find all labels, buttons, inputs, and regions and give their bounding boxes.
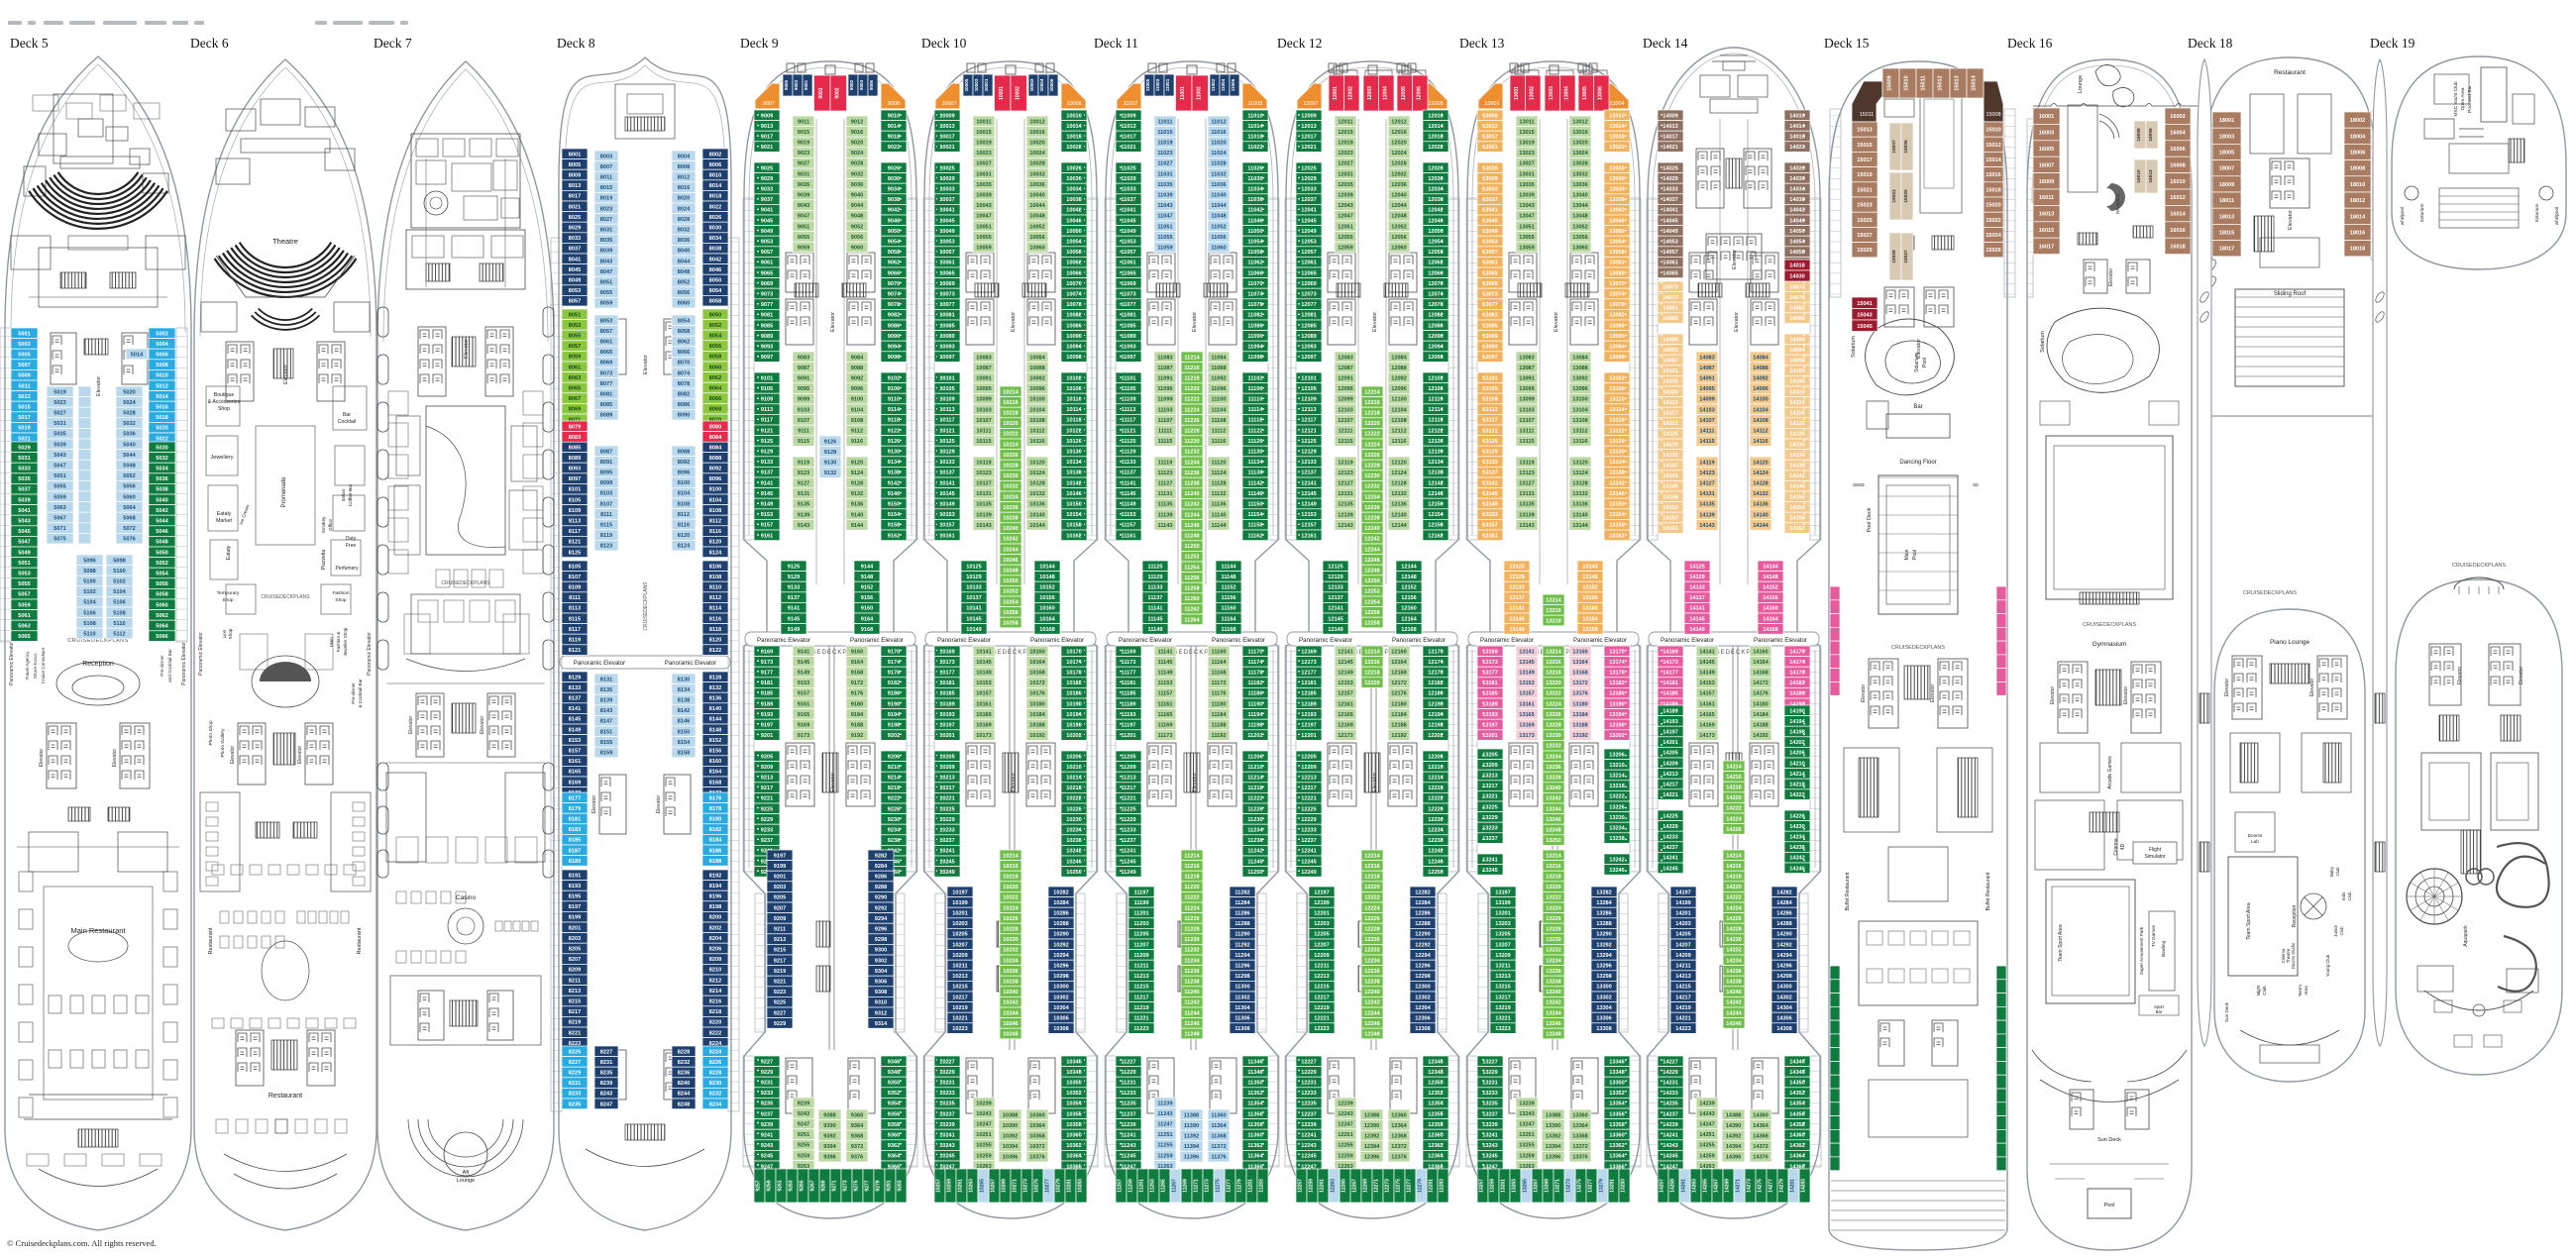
svg-text:12135: 12135 (1338, 502, 1353, 508)
svg-text:9043: 9043 (798, 203, 809, 209)
svg-text:CRUISEDECKPLANS: CRUISEDECKPLANS (441, 580, 490, 586)
svg-text:5027: 5027 (54, 411, 65, 417)
svg-text:5021: 5021 (18, 436, 30, 442)
svg-text:13056: 13056 (1572, 235, 1588, 241)
svg-text:12221: 12221 (1314, 1016, 1330, 1022)
svg-text:8085: 8085 (600, 402, 612, 408)
svg-text:11028: 11028 (1211, 161, 1226, 167)
svg-text:13160: 13160 (1572, 649, 1588, 655)
svg-text:Panoramic Elevator: Panoramic Elevator (367, 632, 373, 676)
svg-text:11040: 11040 (1211, 193, 1226, 199)
svg-text:11119: 11119 (1158, 460, 1173, 466)
svg-text:13199: 13199 (1495, 900, 1511, 906)
svg-text:10226: 10226 (1003, 453, 1019, 459)
svg-text:Elevator: Elevator (230, 745, 236, 764)
svg-text:8230: 8230 (709, 1081, 721, 1087)
svg-text:8158: 8158 (678, 751, 690, 757)
svg-text:10172: 10172 (1029, 681, 1045, 686)
svg-text:14144: 14144 (1763, 564, 1778, 570)
svg-text:5035: 5035 (18, 476, 30, 482)
svg-text:9157: 9157 (761, 523, 773, 529)
svg-text:Market: Market (216, 518, 232, 524)
svg-text:Elevator: Elevator (1011, 773, 1017, 792)
svg-text:9139: 9139 (798, 512, 809, 518)
svg-text:13015: 13015 (1519, 130, 1535, 136)
svg-text:9172: 9172 (851, 681, 863, 686)
svg-text:12120: 12120 (1391, 460, 1407, 466)
svg-text:11248: 11248 (1184, 1032, 1199, 1038)
svg-text:11141: 11141 (1158, 649, 1173, 655)
svg-text:13292: 13292 (1596, 942, 1612, 948)
svg-text:8034: 8034 (709, 236, 722, 242)
svg-text:9169: 9169 (761, 649, 773, 655)
svg-text:8240: 8240 (678, 1081, 690, 1087)
svg-text:Elevator: Elevator (643, 355, 649, 374)
svg-text:8053: 8053 (569, 323, 581, 329)
svg-text:13248: 13248 (1546, 1032, 1561, 1038)
svg-text:8138: 8138 (678, 698, 690, 704)
svg-text:11306: 11306 (1234, 1016, 1249, 1022)
svg-text:9314: 9314 (875, 1021, 888, 1027)
svg-text:12388: 12388 (1364, 1112, 1380, 1118)
svg-text:Pre-dinner: Pre-dinner (351, 682, 356, 704)
svg-text:12250: 12250 (1364, 578, 1380, 584)
svg-text:8069: 8069 (569, 407, 581, 413)
svg-text:8116: 8116 (709, 529, 721, 535)
svg-text:10131: 10131 (976, 491, 992, 497)
svg-text:9223: 9223 (774, 990, 786, 995)
svg-text:5053: 5053 (18, 572, 30, 577)
svg-text:9225: 9225 (761, 806, 773, 812)
svg-text:12302: 12302 (1415, 995, 1431, 1000)
svg-text:Jeweller Shop: Jeweller Shop (343, 627, 348, 656)
svg-text:10032: 10032 (1029, 171, 1045, 177)
svg-text:8178: 8178 (709, 806, 721, 812)
svg-text:13184: 13184 (1572, 712, 1588, 718)
svg-text:10003: 10003 (974, 78, 979, 91)
svg-text:12247: 12247 (1338, 1122, 1353, 1128)
svg-text:8010: 8010 (709, 173, 721, 179)
svg-text:8145: 8145 (569, 717, 581, 723)
svg-text:13168: 13168 (1582, 627, 1598, 633)
svg-text:11164: 11164 (1212, 660, 1228, 666)
svg-text:8011: 8011 (600, 175, 612, 181)
svg-text:8015: 8015 (600, 185, 612, 191)
svg-text:8060: 8060 (678, 301, 690, 307)
svg-text:12180: 12180 (1391, 701, 1407, 707)
svg-text:11224: 11224 (1184, 407, 1200, 413)
svg-text:12007: 12007 (1304, 101, 1319, 107)
svg-text:11035: 11035 (1157, 182, 1172, 188)
svg-text:12184: 12184 (1391, 712, 1407, 718)
svg-text:8104: 8104 (709, 497, 722, 503)
svg-text:8141: 8141 (569, 706, 581, 712)
svg-text:8210: 8210 (709, 968, 721, 974)
svg-text:13120: 13120 (1572, 460, 1588, 466)
svg-text:8187: 8187 (569, 848, 581, 854)
svg-text:8234: 8234 (709, 1101, 722, 1107)
svg-text:13145: 13145 (1509, 616, 1525, 622)
svg-text:10236: 10236 (1003, 505, 1019, 511)
svg-text:11152: 11152 (1222, 585, 1236, 591)
svg-text:Restaurant: Restaurant (208, 927, 214, 954)
svg-text:13207: 13207 (1495, 942, 1511, 948)
svg-text:13096: 13096 (1572, 386, 1588, 392)
svg-text:12215: 12215 (1314, 985, 1330, 991)
svg-text:13234: 13234 (1546, 754, 1561, 760)
svg-text:11215: 11215 (1133, 985, 1148, 991)
svg-text:10251: 10251 (976, 1132, 992, 1138)
svg-text:10169: 10169 (976, 723, 992, 729)
svg-text:Shore Excur.: Shore Excur. (33, 653, 38, 679)
svg-text:5007: 5007 (18, 363, 30, 368)
svg-text:11220: 11220 (1184, 386, 1199, 392)
svg-text:12228: 12228 (1364, 927, 1380, 933)
svg-text:12294: 12294 (1415, 953, 1431, 959)
svg-text:12149: 12149 (1338, 671, 1353, 677)
svg-text:10019: 10019 (976, 141, 992, 147)
svg-text:10248: 10248 (1003, 569, 1019, 575)
svg-text:10100: 10100 (1029, 397, 1045, 403)
svg-text:5031: 5031 (18, 456, 30, 462)
svg-text:13236: 13236 (1546, 765, 1561, 771)
svg-text:5042: 5042 (156, 508, 167, 514)
svg-text:9047: 9047 (798, 214, 809, 220)
svg-text:10044: 10044 (1029, 203, 1045, 209)
svg-text:9141: 9141 (788, 606, 800, 612)
svg-text:8142: 8142 (678, 708, 690, 714)
svg-text:10284: 10284 (1053, 900, 1069, 906)
svg-text:13157: 13157 (1519, 691, 1535, 697)
svg-text:9005: 9005 (784, 79, 789, 90)
svg-text:11169: 11169 (1158, 723, 1173, 729)
svg-text:13176: 13176 (1572, 691, 1588, 697)
svg-text:11180: 11180 (1212, 701, 1227, 707)
svg-text:8054: 8054 (709, 334, 722, 340)
svg-text:12164: 12164 (1391, 660, 1407, 666)
svg-text:10218: 10218 (1003, 411, 1019, 417)
svg-text:9281: 9281 (887, 1180, 893, 1191)
svg-text:9227: 9227 (761, 1059, 773, 1065)
svg-text:10108: 10108 (1029, 418, 1045, 424)
svg-text:10115: 10115 (976, 439, 991, 445)
svg-text:10180: 10180 (1029, 701, 1045, 707)
svg-text:5014: 5014 (156, 394, 168, 400)
svg-text:11019: 11019 (1157, 141, 1172, 147)
svg-text:13019: 13019 (1519, 141, 1535, 147)
svg-text:9041: 9041 (761, 208, 773, 214)
svg-text:13115: 13115 (1519, 439, 1534, 445)
svg-text:10111: 10111 (977, 429, 992, 435)
svg-text:11220: 11220 (1184, 885, 1199, 890)
svg-text:Deck 14: Deck 14 (1643, 36, 1688, 51)
svg-text:13091: 13091 (1519, 376, 1535, 382)
svg-text:8079: 8079 (569, 424, 581, 430)
svg-text:5040: 5040 (156, 497, 167, 503)
svg-text:10232: 10232 (1003, 948, 1019, 954)
svg-text:8108: 8108 (709, 575, 721, 580)
svg-text:13161: 13161 (1519, 701, 1535, 707)
svg-text:Panoramic Elevator: Panoramic Elevator (1661, 637, 1714, 644)
svg-text:10216: 10216 (1003, 400, 1019, 406)
svg-text:10239: 10239 (976, 1100, 992, 1106)
svg-text:12160: 12160 (1401, 606, 1417, 612)
svg-text:11125: 11125 (1148, 564, 1163, 570)
svg-text:8182: 8182 (709, 827, 721, 833)
svg-text:8199: 8199 (569, 915, 581, 921)
svg-text:10116: 10116 (1029, 439, 1044, 445)
svg-text:8012: 8012 (678, 175, 690, 181)
svg-text:13039: 13039 (1519, 193, 1535, 199)
svg-text:10201: 10201 (952, 911, 968, 917)
svg-text:12016: 12016 (1391, 130, 1407, 136)
svg-text:11216: 11216 (1184, 366, 1199, 371)
svg-text:9173: 9173 (761, 660, 773, 666)
svg-text:9116: 9116 (851, 439, 863, 445)
svg-text:9078: 9078 (888, 302, 900, 308)
svg-text:11246: 11246 (1184, 1021, 1199, 1027)
svg-text:10164: 10164 (1029, 660, 1045, 666)
svg-text:12083: 12083 (1338, 355, 1353, 361)
svg-text:11219: 11219 (1133, 1005, 1148, 1011)
svg-text:5011: 5011 (18, 383, 30, 389)
svg-text:8061: 8061 (569, 365, 581, 370)
svg-text:8114: 8114 (709, 606, 722, 612)
svg-text:13234: 13234 (1546, 958, 1561, 964)
svg-text:9002: 9002 (849, 79, 854, 90)
svg-text:13133: 13133 (1509, 585, 1525, 591)
svg-text:5067: 5067 (54, 516, 65, 522)
svg-text:12230: 12230 (1364, 937, 1380, 943)
svg-text:9050: 9050 (888, 229, 900, 235)
svg-text:12219: 12219 (1314, 1005, 1330, 1011)
svg-text:Restaurant: Restaurant (268, 1093, 302, 1100)
svg-text:12015: 12015 (1338, 130, 1353, 136)
svg-text:11223: 11223 (1133, 1026, 1148, 1032)
svg-text:8068: 8068 (709, 407, 721, 413)
svg-text:10005: 10005 (964, 78, 969, 91)
svg-text:8183: 8183 (569, 827, 581, 833)
svg-text:5020: 5020 (123, 389, 135, 395)
svg-text:9190: 9190 (888, 701, 900, 707)
svg-text:11258: 11258 (1184, 586, 1199, 592)
svg-text:8115: 8115 (569, 616, 581, 622)
svg-text:13220: 13220 (1546, 681, 1561, 686)
svg-text:13047: 13047 (1519, 214, 1535, 220)
svg-text:11262: 11262 (1184, 607, 1199, 613)
svg-text:8222: 8222 (709, 1030, 721, 1036)
svg-text:5054: 5054 (156, 572, 168, 577)
svg-text:5005: 5005 (18, 353, 30, 359)
svg-text:11036: 11036 (1211, 182, 1226, 188)
svg-text:12176: 12176 (1391, 691, 1407, 697)
svg-text:12214: 12214 (1364, 649, 1380, 655)
svg-text:13001: 13001 (1485, 101, 1500, 107)
svg-text:10288: 10288 (1053, 921, 1069, 927)
svg-text:8039: 8039 (600, 249, 612, 255)
svg-text:9157: 9157 (798, 691, 809, 697)
svg-text:8060: 8060 (709, 365, 721, 370)
svg-text:9133: 9133 (761, 460, 773, 466)
svg-text:Elevator: Elevator (1192, 312, 1198, 332)
svg-text:12277: 12277 (1407, 1179, 1413, 1193)
svg-text:5024: 5024 (123, 400, 136, 406)
svg-text:10091: 10091 (976, 376, 992, 382)
svg-text:11004: 11004 (1221, 78, 1226, 91)
svg-text:10226: 10226 (1003, 916, 1019, 922)
svg-text:9145: 9145 (788, 616, 800, 622)
svg-text:13143: 13143 (1519, 523, 1535, 529)
svg-text:11205: 11205 (1133, 932, 1148, 938)
svg-text:12055: 12055 (1338, 235, 1353, 241)
svg-text:11209: 11209 (1133, 953, 1148, 959)
svg-text:8001: 8001 (569, 152, 581, 157)
svg-text:9178: 9178 (888, 671, 900, 677)
svg-text:13012: 13012 (1572, 119, 1588, 125)
svg-text:5057: 5057 (18, 592, 30, 598)
svg-text:10261: 10261 (958, 1179, 964, 1193)
svg-text:8059: 8059 (569, 355, 581, 361)
svg-text:Elevator: Elevator (1372, 773, 1378, 792)
svg-text:12232: 12232 (1364, 948, 1380, 954)
svg-text:Cruise Consultant: Cruise Consultant (41, 647, 46, 683)
svg-text:8176: 8176 (709, 795, 721, 801)
svg-text:8048: 8048 (678, 269, 690, 275)
svg-text:9358: 9358 (888, 1122, 900, 1128)
svg-text:11024: 11024 (1211, 151, 1227, 157)
svg-text:10136: 10136 (1029, 502, 1045, 508)
svg-text:Elevator: Elevator (656, 794, 662, 813)
svg-text:9140: 9140 (851, 512, 863, 518)
svg-text:13124: 13124 (1572, 471, 1588, 476)
svg-text:10219: 10219 (952, 1005, 968, 1011)
svg-text:11044: 11044 (1211, 203, 1227, 209)
svg-text:12256: 12256 (1364, 610, 1380, 616)
svg-text:9197: 9197 (774, 853, 786, 859)
svg-text:Deck 16: Deck 16 (2007, 36, 2053, 51)
svg-text:10216: 10216 (1003, 864, 1019, 870)
svg-text:12011: 12011 (1338, 119, 1352, 125)
svg-text:8045: 8045 (569, 267, 581, 273)
svg-text:13164: 13164 (1582, 616, 1598, 622)
svg-text:12020: 12020 (1391, 141, 1407, 147)
svg-text:13160: 13160 (1582, 606, 1598, 612)
svg-text:8248: 8248 (678, 1101, 690, 1107)
svg-text:12248: 12248 (1364, 569, 1380, 575)
svg-text:10230: 10230 (1003, 473, 1019, 479)
svg-text:9218: 9218 (888, 786, 900, 791)
svg-text:10168: 10168 (1029, 671, 1045, 677)
svg-text:9188: 9188 (851, 723, 863, 729)
svg-text:8214: 8214 (709, 989, 722, 995)
svg-text:13242: 13242 (1546, 1000, 1561, 1006)
svg-text:8229: 8229 (569, 1071, 581, 1077)
svg-text:10141: 10141 (966, 606, 982, 612)
svg-text:8013: 8013 (569, 183, 581, 189)
svg-text:9168: 9168 (851, 671, 863, 677)
svg-text:5019: 5019 (54, 389, 65, 395)
svg-text:8095: 8095 (600, 471, 612, 476)
svg-text:8110: 8110 (709, 585, 721, 591)
svg-text:9238: 9238 (888, 838, 900, 844)
svg-text:5055: 5055 (54, 484, 65, 490)
svg-text:8056: 8056 (678, 290, 690, 296)
svg-text:12209: 12209 (1314, 953, 1330, 959)
svg-text:13088: 13088 (1572, 366, 1588, 371)
svg-text:13223: 13223 (1495, 1026, 1511, 1032)
svg-text:10259: 10259 (947, 1179, 953, 1193)
svg-text:9161: 9161 (798, 701, 809, 707)
svg-text:11123: 11123 (1158, 471, 1173, 476)
svg-text:10199: 10199 (952, 900, 968, 906)
svg-text:12396: 12396 (1364, 1155, 1380, 1161)
svg-text:9182: 9182 (888, 681, 900, 686)
svg-text:12143: 12143 (1338, 523, 1353, 529)
svg-text:5043: 5043 (54, 453, 65, 459)
svg-text:9237: 9237 (761, 838, 773, 844)
svg-text:9197: 9197 (761, 723, 773, 729)
svg-text:10096: 10096 (1029, 386, 1045, 392)
svg-text:Panoramic Elevator: Panoramic Elevator (1212, 637, 1265, 644)
svg-text:9090: 9090 (888, 334, 900, 340)
svg-text:9023: 9023 (798, 151, 809, 157)
svg-text:9192: 9192 (851, 733, 863, 739)
svg-text:13028: 13028 (1572, 161, 1588, 167)
svg-text:5035: 5035 (54, 432, 65, 438)
svg-text:5064: 5064 (123, 505, 136, 511)
svg-text:Piazzetta: Piazzetta (321, 550, 327, 571)
svg-text:10124: 10124 (1029, 471, 1045, 476)
svg-text:10011: 10011 (976, 119, 991, 125)
svg-text:11396: 11396 (1184, 1155, 1199, 1161)
svg-text:9226: 9226 (888, 806, 900, 812)
svg-text:10388: 10388 (1003, 1112, 1019, 1118)
svg-text:11261: 11261 (1139, 1179, 1145, 1193)
svg-text:12028: 12028 (1391, 161, 1407, 167)
svg-text:5063: 5063 (18, 624, 30, 630)
svg-text:5032: 5032 (156, 456, 167, 462)
svg-text:9098: 9098 (888, 355, 900, 361)
svg-text:13165: 13165 (1519, 712, 1535, 718)
svg-text:9095: 9095 (798, 386, 809, 392)
svg-text:5037: 5037 (18, 487, 30, 493)
svg-text:11011: 11011 (1158, 119, 1173, 125)
svg-text:11290: 11290 (1234, 932, 1249, 938)
svg-text:8092: 8092 (709, 467, 721, 472)
svg-text:8108: 8108 (678, 501, 690, 507)
svg-text:10244: 10244 (1003, 1010, 1019, 1016)
svg-text:12164: 12164 (1401, 616, 1417, 622)
svg-text:9284: 9284 (875, 864, 888, 870)
svg-text:13043: 13043 (1519, 203, 1535, 209)
svg-text:13216: 13216 (1546, 864, 1561, 870)
svg-text:13230: 13230 (1546, 733, 1561, 739)
svg-text:9180: 9180 (851, 701, 863, 707)
svg-text:8160: 8160 (709, 759, 721, 765)
svg-text:10137: 10137 (966, 595, 982, 601)
svg-text:8002: 8002 (709, 152, 721, 157)
svg-text:5045: 5045 (18, 529, 30, 535)
svg-text:9062: 9062 (888, 261, 900, 266)
svg-text:5019: 5019 (18, 426, 30, 432)
svg-text:9177: 9177 (761, 671, 773, 677)
svg-text:10165: 10165 (976, 712, 992, 718)
svg-text:11006: 11006 (1231, 78, 1235, 91)
svg-text:12060: 12060 (1391, 246, 1407, 252)
svg-text:8169: 8169 (569, 780, 581, 786)
svg-text:9130: 9130 (888, 450, 900, 456)
svg-text:9141: 9141 (761, 480, 773, 486)
